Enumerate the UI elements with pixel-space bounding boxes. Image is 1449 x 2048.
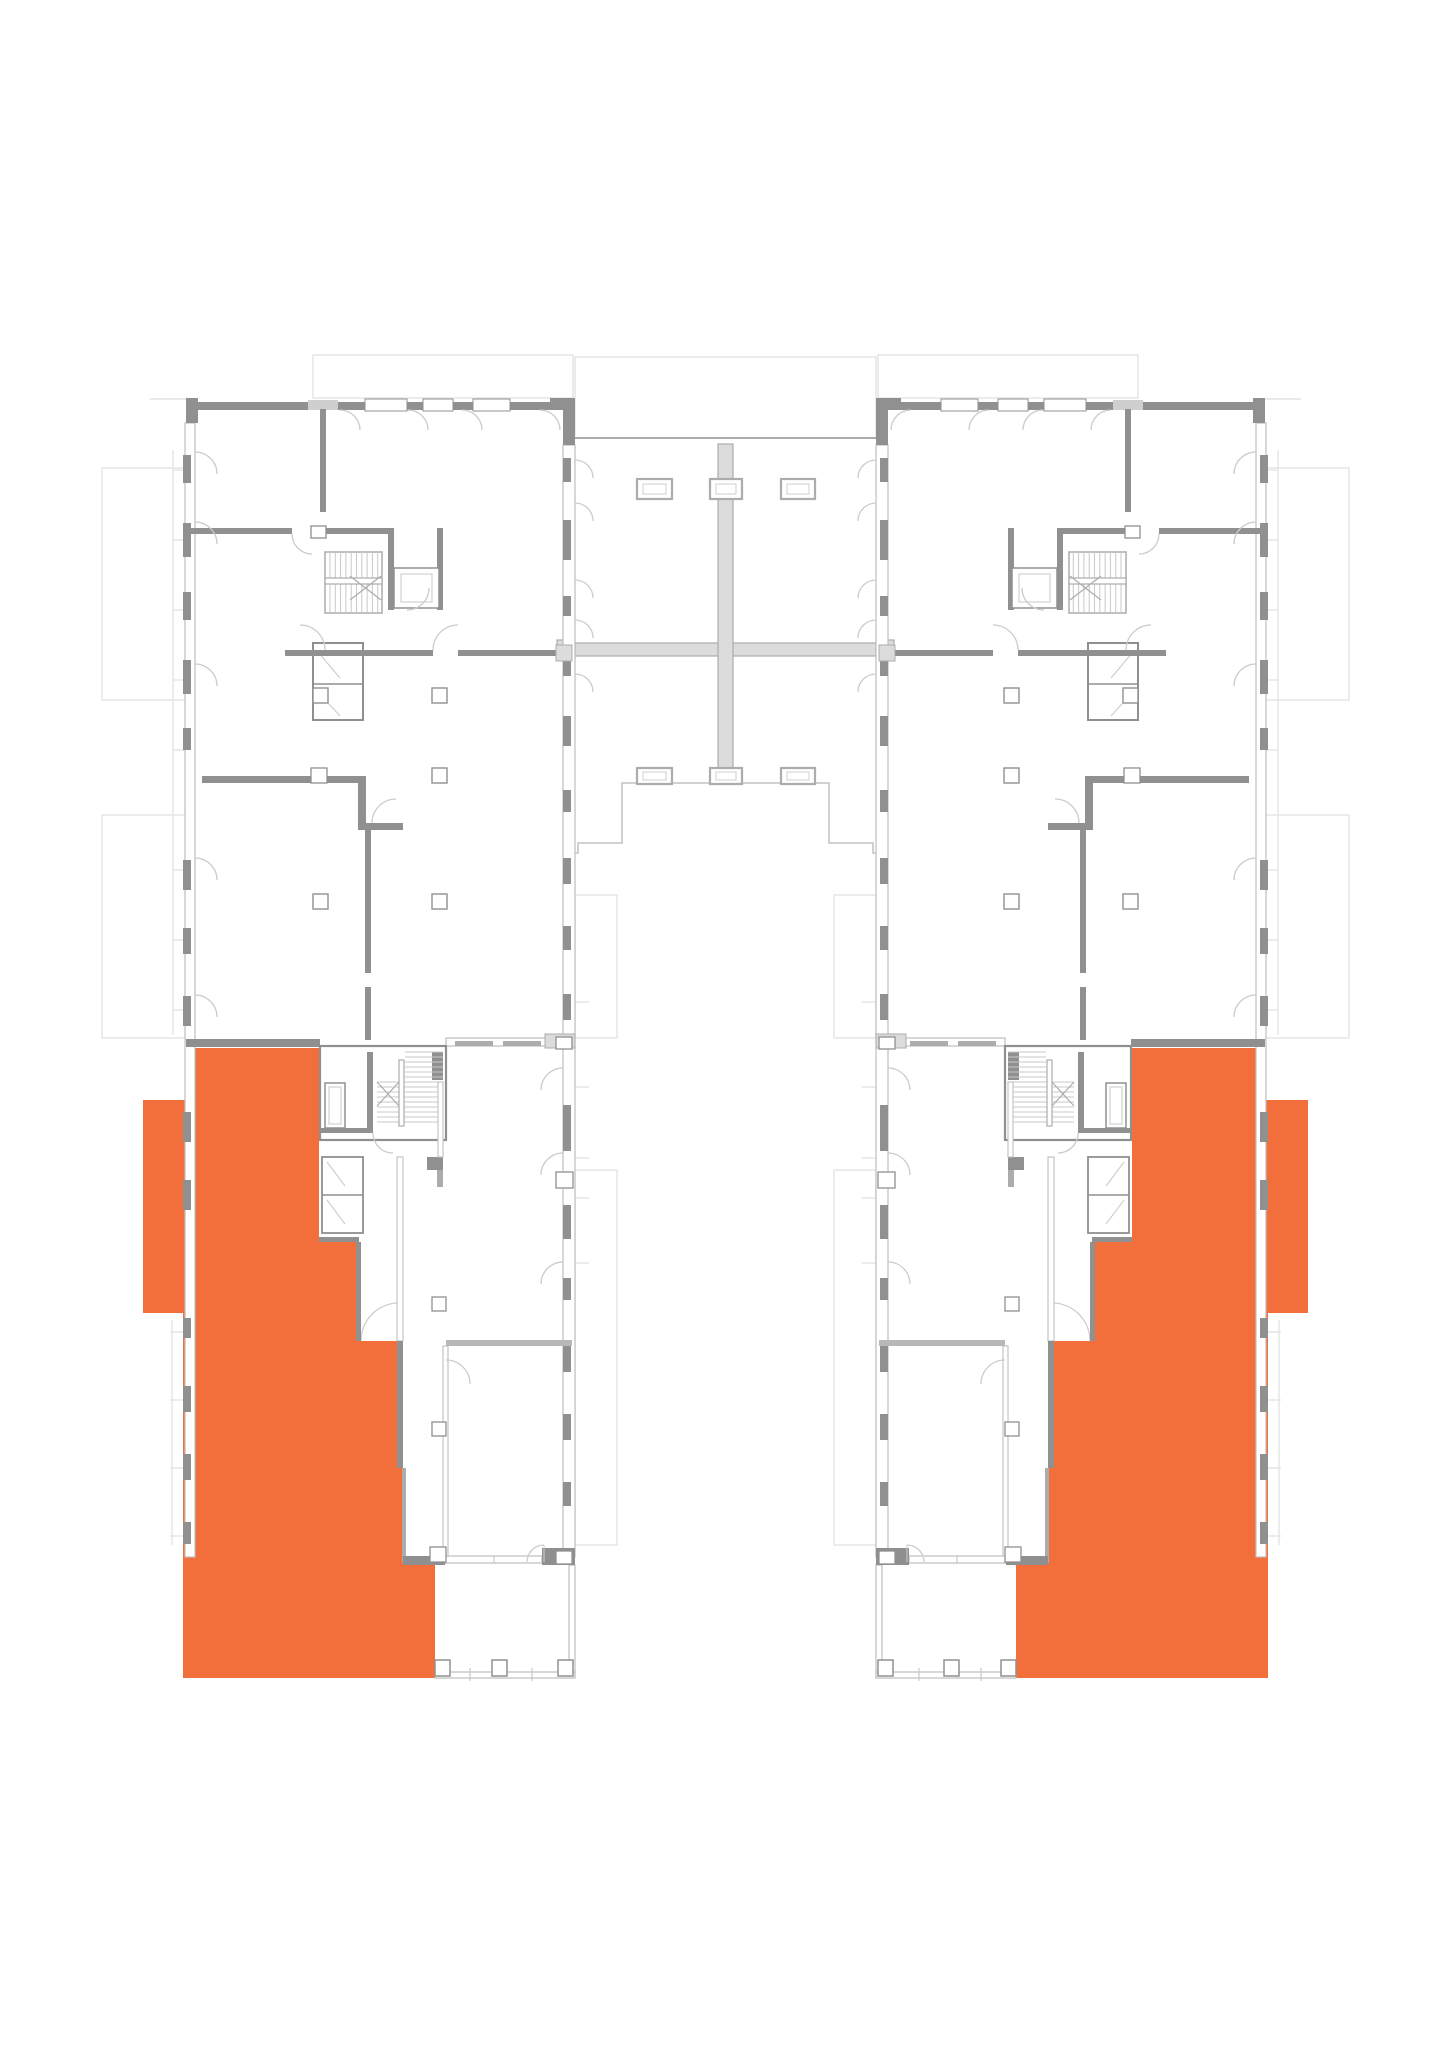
duct bbox=[325, 1083, 345, 1128]
duct bbox=[1106, 1083, 1126, 1128]
pier-block bbox=[311, 526, 326, 538]
door-arc bbox=[446, 1360, 470, 1384]
east-pier bbox=[563, 596, 571, 616]
pier-block bbox=[1125, 526, 1140, 538]
west-pier bbox=[1260, 860, 1268, 890]
porch-side-band bbox=[569, 1565, 575, 1675]
window-arc bbox=[195, 664, 217, 686]
door-arc bbox=[1055, 799, 1079, 823]
door-arc bbox=[372, 799, 396, 823]
north-facade-wall bbox=[1143, 402, 1253, 410]
window-arc bbox=[575, 580, 593, 598]
column bbox=[432, 1422, 446, 1436]
window-arc bbox=[195, 858, 217, 880]
plan-shape bbox=[366, 823, 403, 830]
unit-edge-wall bbox=[319, 1237, 359, 1242]
plan-shape bbox=[879, 645, 895, 661]
west-pier bbox=[183, 728, 191, 750]
west-pier bbox=[183, 1112, 191, 1142]
plan-shape bbox=[1080, 987, 1086, 1040]
west-pier bbox=[1260, 660, 1268, 694]
east-pier bbox=[563, 994, 571, 1020]
west-pier bbox=[183, 1180, 191, 1210]
east-pier bbox=[563, 1346, 571, 1372]
corridor-wall bbox=[458, 650, 572, 656]
skylight bbox=[710, 768, 742, 784]
west-pier bbox=[1260, 1318, 1268, 1338]
north-window bbox=[998, 399, 1028, 411]
column bbox=[313, 688, 328, 703]
pier-block bbox=[879, 1551, 895, 1564]
unit-edge-wall bbox=[1045, 1468, 1049, 1563]
east-pier bbox=[880, 994, 888, 1020]
unit-edge-wall bbox=[1092, 1237, 1132, 1242]
plan-shape bbox=[556, 645, 572, 661]
plan-shape bbox=[358, 776, 366, 830]
west-pier bbox=[1260, 1112, 1268, 1142]
east-pier bbox=[563, 1414, 571, 1440]
plan-shape bbox=[1048, 823, 1085, 830]
west-pier bbox=[183, 523, 191, 557]
plan-shape bbox=[320, 1128, 373, 1133]
column bbox=[1005, 1422, 1019, 1436]
window-arc bbox=[195, 452, 217, 474]
east-pier bbox=[563, 1205, 571, 1239]
plan-shape bbox=[367, 1052, 373, 1128]
plan-shape bbox=[901, 402, 941, 410]
floor-plan bbox=[0, 0, 1449, 2048]
plan-shape bbox=[1047, 1060, 1052, 1126]
plan-shape bbox=[1085, 776, 1093, 830]
pier-block bbox=[878, 1172, 895, 1188]
east-pier bbox=[880, 926, 888, 950]
window-arc bbox=[195, 995, 217, 1017]
pier-block bbox=[556, 1172, 573, 1188]
window-arc bbox=[858, 674, 876, 692]
plan-shape bbox=[427, 1157, 443, 1170]
east-pier bbox=[880, 1105, 888, 1151]
west-pier bbox=[183, 455, 191, 483]
unit-edge-wall bbox=[1090, 1242, 1095, 1341]
window-arc bbox=[575, 460, 593, 478]
skylight bbox=[781, 768, 815, 784]
window-arc bbox=[858, 503, 876, 521]
east-pier bbox=[880, 1205, 888, 1239]
column bbox=[1005, 1297, 1019, 1311]
partition-wall bbox=[320, 409, 326, 512]
west-pier bbox=[183, 996, 191, 1026]
plan-shape bbox=[1057, 528, 1063, 610]
west-pier bbox=[183, 1318, 191, 1338]
window-arc bbox=[575, 503, 593, 521]
plan-shape bbox=[365, 987, 371, 1040]
window-arc bbox=[888, 1068, 910, 1090]
west-pier bbox=[183, 1386, 191, 1412]
nw-corner bbox=[1253, 398, 1265, 423]
east-pier bbox=[880, 596, 888, 616]
window-arc bbox=[540, 410, 560, 430]
balcony-outline-west-1 bbox=[102, 468, 189, 700]
unit-edge-wall bbox=[397, 1341, 403, 1468]
north-window bbox=[423, 399, 453, 411]
apartment-wall bbox=[365, 830, 371, 973]
east-pier bbox=[563, 716, 571, 746]
west-pier bbox=[1260, 996, 1268, 1026]
porch-column bbox=[492, 1660, 507, 1676]
window-arc bbox=[541, 1262, 563, 1284]
corridor-band bbox=[438, 1082, 443, 1157]
east-pier bbox=[880, 858, 888, 884]
column bbox=[313, 894, 328, 909]
plan-shape bbox=[1078, 1128, 1131, 1133]
west-pier bbox=[1260, 592, 1268, 620]
unit-edge-wall bbox=[1048, 1341, 1054, 1468]
pier-block bbox=[556, 1551, 572, 1564]
skylight bbox=[637, 479, 672, 499]
plan-shape bbox=[503, 1041, 541, 1046]
west-pier bbox=[183, 1522, 191, 1544]
window-arc bbox=[888, 1262, 910, 1284]
east-pier bbox=[563, 458, 571, 482]
bridge-outline bbox=[575, 357, 876, 438]
east-pier bbox=[563, 1105, 571, 1151]
window-arc bbox=[575, 620, 593, 638]
pier-block bbox=[1124, 768, 1140, 783]
column bbox=[1004, 768, 1019, 783]
west-pier bbox=[1260, 1180, 1268, 1210]
partition-wall bbox=[1159, 528, 1261, 534]
door-arc bbox=[292, 534, 312, 554]
plan-shape bbox=[453, 402, 473, 410]
pier-block bbox=[879, 1037, 895, 1049]
window-arc bbox=[340, 410, 360, 430]
window-arc bbox=[575, 674, 593, 692]
plan-shape bbox=[437, 1170, 443, 1187]
corridor-wall bbox=[285, 650, 433, 656]
layer-units bbox=[143, 1048, 1308, 1678]
partition-wall bbox=[190, 528, 292, 534]
west-pier bbox=[183, 1454, 191, 1480]
bridge-corner-arm bbox=[563, 398, 575, 445]
lower-north-wall bbox=[1131, 1039, 1265, 1047]
window-arc bbox=[891, 410, 911, 430]
door-arc bbox=[1139, 534, 1159, 554]
window-arc bbox=[858, 460, 876, 478]
corridor-band bbox=[1003, 1346, 1008, 1556]
east-pier bbox=[563, 790, 571, 812]
plan-shape bbox=[1113, 400, 1143, 410]
west-pier bbox=[1260, 1386, 1268, 1412]
west-pier bbox=[1260, 728, 1268, 750]
column bbox=[1123, 688, 1138, 703]
window-arc bbox=[1091, 410, 1111, 430]
porch-column bbox=[435, 1660, 450, 1676]
skylight bbox=[710, 479, 742, 499]
east-pier bbox=[880, 458, 888, 482]
balcony-outline-west-2 bbox=[102, 815, 189, 1038]
apartment-wall bbox=[202, 776, 358, 783]
plan-shape bbox=[1028, 402, 1044, 410]
east-pier bbox=[563, 926, 571, 950]
west-pier bbox=[1260, 1454, 1268, 1480]
plan-shape bbox=[1086, 402, 1113, 410]
west-pier bbox=[1260, 928, 1268, 954]
pier-block bbox=[1005, 1547, 1021, 1562]
west-pier bbox=[1260, 455, 1268, 483]
column bbox=[432, 894, 447, 909]
east-pier bbox=[880, 1482, 888, 1506]
unit-edge-wall bbox=[356, 1242, 361, 1341]
porch-column bbox=[878, 1660, 893, 1676]
door-arc bbox=[981, 1360, 1005, 1384]
nw-corner bbox=[186, 398, 198, 423]
porch-side-band bbox=[876, 1565, 882, 1675]
terrace-outline-court-1 bbox=[834, 895, 876, 1038]
bridge-corner-arm bbox=[876, 398, 888, 445]
column bbox=[1004, 688, 1019, 703]
east-pier bbox=[880, 716, 888, 746]
plan-shape bbox=[308, 400, 338, 410]
column bbox=[432, 1297, 446, 1311]
column bbox=[432, 768, 447, 783]
entry-recess-outline bbox=[569, 783, 882, 853]
balcony-outline-north bbox=[313, 355, 573, 398]
plan-shape bbox=[1008, 1170, 1014, 1187]
plan-shape bbox=[399, 1060, 404, 1126]
balcony-outline-west-1 bbox=[1262, 468, 1349, 700]
plan-shape bbox=[455, 1041, 493, 1046]
east-pier bbox=[880, 790, 888, 812]
apartment-wall bbox=[1093, 776, 1249, 783]
plan-shape bbox=[407, 402, 423, 410]
east-pier bbox=[880, 520, 888, 560]
column bbox=[1123, 894, 1138, 909]
corridor-wall bbox=[879, 650, 993, 656]
pier-block bbox=[311, 768, 327, 783]
door-arc bbox=[433, 625, 458, 650]
north-window bbox=[365, 399, 407, 411]
window-arc bbox=[1234, 452, 1256, 474]
window-arc bbox=[1234, 858, 1256, 880]
north-window bbox=[941, 399, 978, 411]
plan-shape bbox=[1008, 1157, 1024, 1170]
corridor-wall bbox=[1018, 650, 1166, 656]
plan-shape bbox=[1078, 1052, 1084, 1128]
column bbox=[432, 688, 447, 703]
north-facade-wall bbox=[198, 402, 308, 410]
lower-north-wall bbox=[186, 1039, 320, 1047]
east-pier bbox=[563, 858, 571, 884]
porch-column bbox=[1001, 1660, 1016, 1676]
room-divider bbox=[879, 1340, 1005, 1346]
plan-shape bbox=[958, 1041, 996, 1046]
west-pier bbox=[183, 660, 191, 694]
east-pier bbox=[563, 520, 571, 560]
door-arc bbox=[993, 625, 1018, 650]
unit-edge-wall bbox=[402, 1468, 406, 1563]
north-window bbox=[1044, 399, 1086, 411]
plan-shape bbox=[338, 402, 365, 410]
corridor-band bbox=[397, 1157, 403, 1341]
corridor-band bbox=[443, 1346, 448, 1556]
west-pier bbox=[1260, 1522, 1268, 1544]
pier-block bbox=[430, 1547, 446, 1562]
skylight bbox=[781, 479, 815, 499]
skylight bbox=[637, 768, 672, 784]
terrace-outline-court-2 bbox=[575, 1170, 617, 1545]
porch-column bbox=[558, 1660, 573, 1676]
window-arc bbox=[1234, 995, 1256, 1017]
window-arc bbox=[408, 410, 428, 430]
window-arc bbox=[1023, 410, 1043, 430]
porch-column bbox=[944, 1660, 959, 1676]
plan-shape bbox=[910, 1041, 948, 1046]
terrace-outline-court-2 bbox=[834, 1170, 876, 1545]
corridor-band bbox=[1048, 1157, 1054, 1341]
layer-center bbox=[557, 357, 894, 853]
room-divider bbox=[446, 1340, 572, 1346]
plan-shape bbox=[978, 402, 998, 410]
floor-plan-svg bbox=[0, 0, 1449, 2048]
east-pier bbox=[880, 1346, 888, 1372]
east-pier bbox=[880, 1414, 888, 1440]
plan-shape bbox=[388, 528, 394, 610]
window-arc bbox=[462, 410, 482, 430]
window-arc bbox=[858, 620, 876, 638]
east-pier bbox=[563, 1278, 571, 1300]
balcony-outline-west-2 bbox=[1262, 815, 1349, 1038]
apartment-wall bbox=[1080, 830, 1086, 973]
plan-shape bbox=[432, 1052, 443, 1080]
window-arc bbox=[858, 580, 876, 598]
west-pier bbox=[1260, 523, 1268, 557]
window-arc bbox=[969, 410, 989, 430]
plan-shape bbox=[510, 402, 550, 410]
west-pier bbox=[183, 860, 191, 890]
east-pier bbox=[563, 1482, 571, 1506]
column bbox=[1004, 894, 1019, 909]
north-window bbox=[473, 399, 510, 411]
plan-shape bbox=[1008, 1052, 1019, 1080]
west-pier bbox=[183, 592, 191, 620]
pier-block bbox=[556, 1037, 572, 1049]
window-arc bbox=[1234, 664, 1256, 686]
corridor-band bbox=[1008, 1082, 1013, 1157]
west-pier bbox=[183, 928, 191, 954]
partition-wall bbox=[1125, 409, 1131, 512]
east-pier bbox=[880, 1278, 888, 1300]
terrace-outline-court-1 bbox=[575, 895, 617, 1038]
window-arc bbox=[541, 1068, 563, 1090]
balcony-outline-north bbox=[878, 355, 1138, 398]
